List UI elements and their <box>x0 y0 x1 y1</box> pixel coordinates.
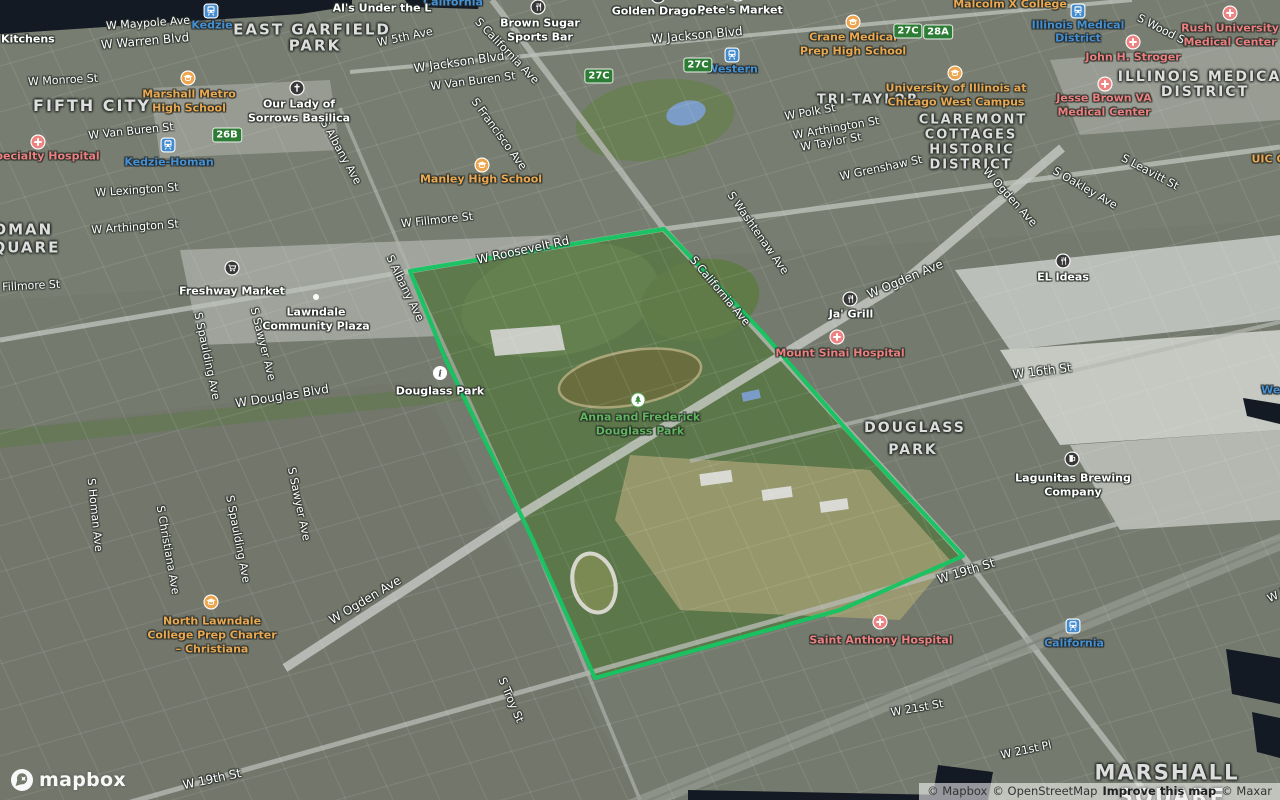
map-canvas[interactable]: EAST GARFIELDPARKFIFTH CITYTRI-TAYLORCLA… <box>0 0 1280 800</box>
improve-this-map-link[interactable]: Improve this map <box>1102 784 1216 798</box>
park-boundary-overlay <box>0 0 1280 800</box>
park-boundary-line <box>410 229 963 678</box>
mapbox-logo[interactable]: mapbox <box>10 768 126 792</box>
attribution-bar: © Mapbox © OpenStreetMap Improve this ma… <box>919 783 1280 800</box>
mapbox-logo-icon <box>10 768 34 792</box>
attribution-osm-link[interactable]: © OpenStreetMap <box>992 784 1097 798</box>
attribution-maxar: © Maxar <box>1221 784 1272 798</box>
mapbox-wordmark: mapbox <box>39 769 126 791</box>
attribution-mapbox-link[interactable]: © Mapbox <box>927 784 987 798</box>
